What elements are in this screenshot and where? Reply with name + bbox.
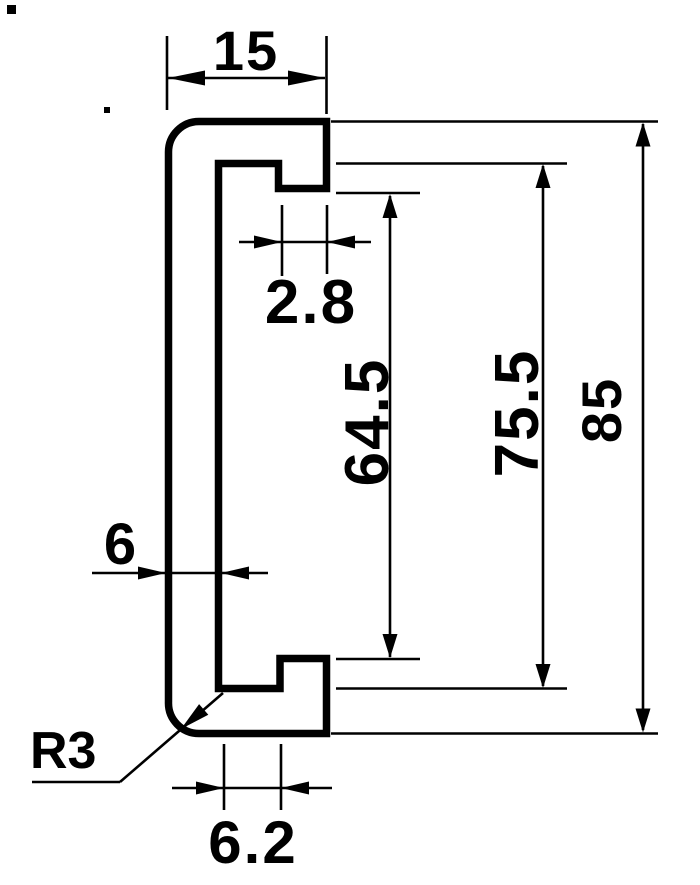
channel-profile-drawing: 15 2.8 64.5 75.5 xyxy=(0,0,700,885)
dim-lip-width: 2.8 xyxy=(239,205,371,337)
arrowhead xyxy=(288,71,325,86)
drawing-sheet: 15 2.8 64.5 75.5 xyxy=(0,0,700,885)
dim-label-opening-height: 64.5 xyxy=(333,358,402,487)
dim-shelf-width: 6.2 xyxy=(172,744,332,876)
arrowhead xyxy=(221,567,249,580)
arrowhead xyxy=(636,123,651,147)
arrowhead xyxy=(196,782,224,795)
arrowhead xyxy=(138,567,166,580)
arrowhead xyxy=(636,709,651,733)
dim-label-web-thickness: 6 xyxy=(104,512,136,577)
dim-overall-width: 15 xyxy=(167,19,327,114)
radius-callout: R3 xyxy=(30,693,223,782)
dim-label-overall-width: 15 xyxy=(213,19,279,82)
dim-opening-height: 64.5 xyxy=(333,193,420,659)
arrowhead xyxy=(536,164,551,188)
scan-speck xyxy=(7,5,16,14)
dim-label-lip-width: 2.8 xyxy=(265,268,357,337)
arrowhead xyxy=(536,664,551,688)
arrowhead xyxy=(383,194,398,218)
arrowhead xyxy=(281,782,309,795)
scan-speck xyxy=(104,107,110,113)
dim-web-thickness: 6 xyxy=(92,512,268,580)
arrowhead xyxy=(383,634,398,658)
dim-label-corner-radius: R3 xyxy=(30,722,96,780)
arrowhead xyxy=(327,236,355,249)
dim-label-inner-height: 75.5 xyxy=(483,349,552,478)
dim-label-overall-height: 85 xyxy=(570,377,633,443)
profile-outline xyxy=(168,122,326,734)
arrowhead xyxy=(168,71,205,86)
dim-label-shelf-width: 6.2 xyxy=(208,809,297,876)
arrowhead xyxy=(254,236,282,249)
